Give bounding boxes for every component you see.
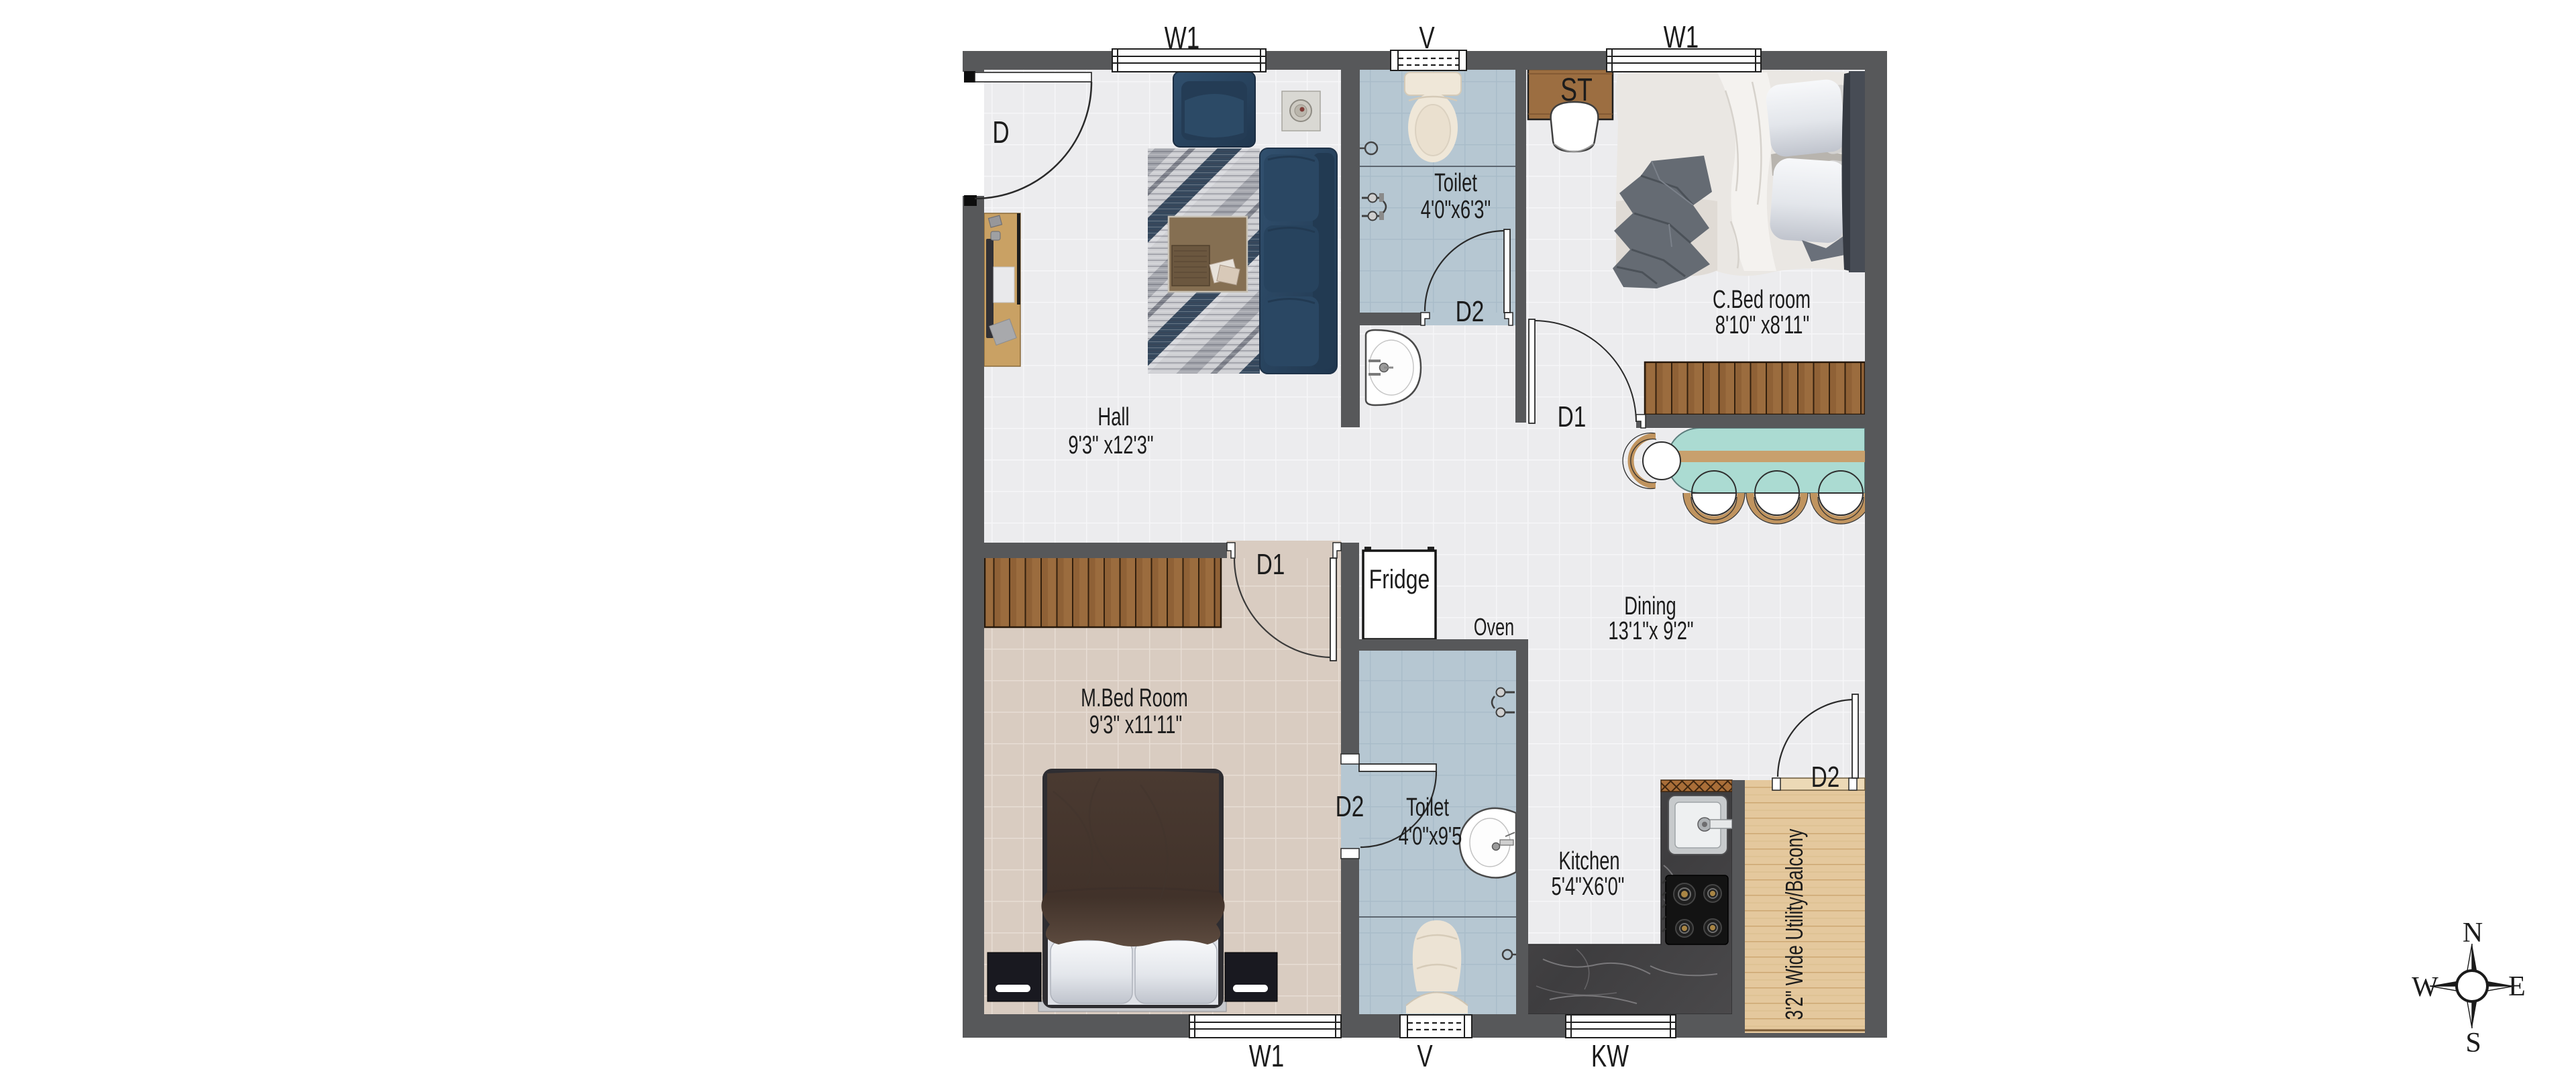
svg-text:N: N xyxy=(2463,918,2483,948)
svg-text:E: E xyxy=(2508,971,2526,1002)
svg-text:D1: D1 xyxy=(1256,549,1285,581)
svg-text:Toilet: Toilet xyxy=(1406,794,1449,822)
svg-text:D: D xyxy=(992,115,1009,150)
svg-text:4'0"x9'5: 4'0"x9'5 xyxy=(1399,822,1462,851)
svg-text:D2: D2 xyxy=(1336,791,1364,823)
svg-text:V: V xyxy=(1419,20,1435,55)
svg-text:C.Bed room: C.Bed room xyxy=(1713,286,1811,314)
svg-text:Fridge: Fridge xyxy=(1369,564,1430,594)
svg-text:D2: D2 xyxy=(1811,761,1840,794)
svg-text:13'1"x 9'2": 13'1"x 9'2" xyxy=(1608,617,1693,645)
svg-text:KW: KW xyxy=(1591,1038,1629,1073)
svg-text:9'3" x11'11": 9'3" x11'11" xyxy=(1089,711,1182,739)
svg-text:5'4"X6'0": 5'4"X6'0" xyxy=(1552,873,1625,901)
svg-text:W1: W1 xyxy=(1165,20,1199,55)
svg-text:Toilet: Toilet xyxy=(1434,169,1477,197)
svg-text:9'3" x12'3": 9'3" x12'3" xyxy=(1068,431,1153,459)
svg-text:W1: W1 xyxy=(1664,19,1699,54)
svg-text:Kitchen: Kitchen xyxy=(1558,847,1619,875)
svg-text:8'10" x8'11": 8'10" x8'11" xyxy=(1715,311,1809,339)
svg-text:D2: D2 xyxy=(1456,296,1485,328)
svg-text:Hall: Hall xyxy=(1097,403,1129,431)
svg-text:3'2" Wide Utility/Balcony: 3'2" Wide Utility/Balcony xyxy=(1780,828,1808,1020)
svg-text:V: V xyxy=(1417,1038,1433,1073)
svg-text:4'0"x6'3": 4'0"x6'3" xyxy=(1421,196,1491,224)
svg-text:S: S xyxy=(2465,1028,2481,1058)
svg-text:D1: D1 xyxy=(1558,401,1587,433)
svg-text:M.Bed Room: M.Bed Room xyxy=(1081,684,1188,712)
svg-text:Oven: Oven xyxy=(1474,614,1514,641)
svg-text:W1: W1 xyxy=(1249,1038,1284,1073)
svg-text:W: W xyxy=(2412,972,2438,1003)
